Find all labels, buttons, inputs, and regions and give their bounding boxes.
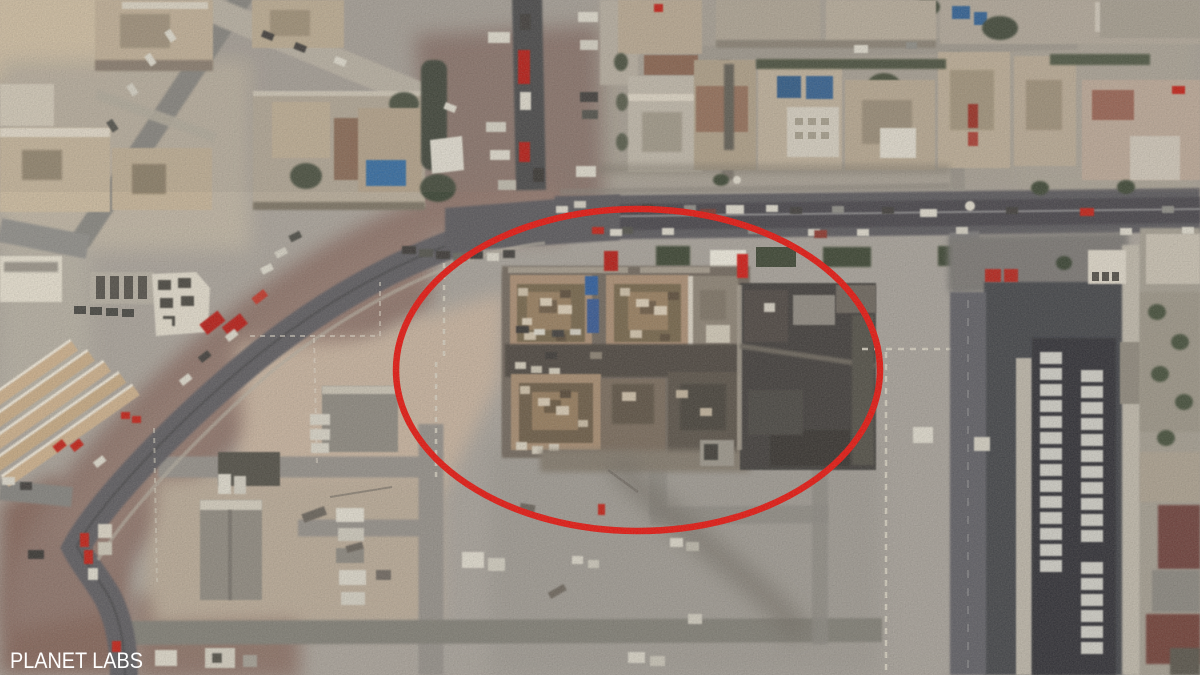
svg-text:PLANET LABS: PLANET LABS bbox=[10, 648, 143, 673]
